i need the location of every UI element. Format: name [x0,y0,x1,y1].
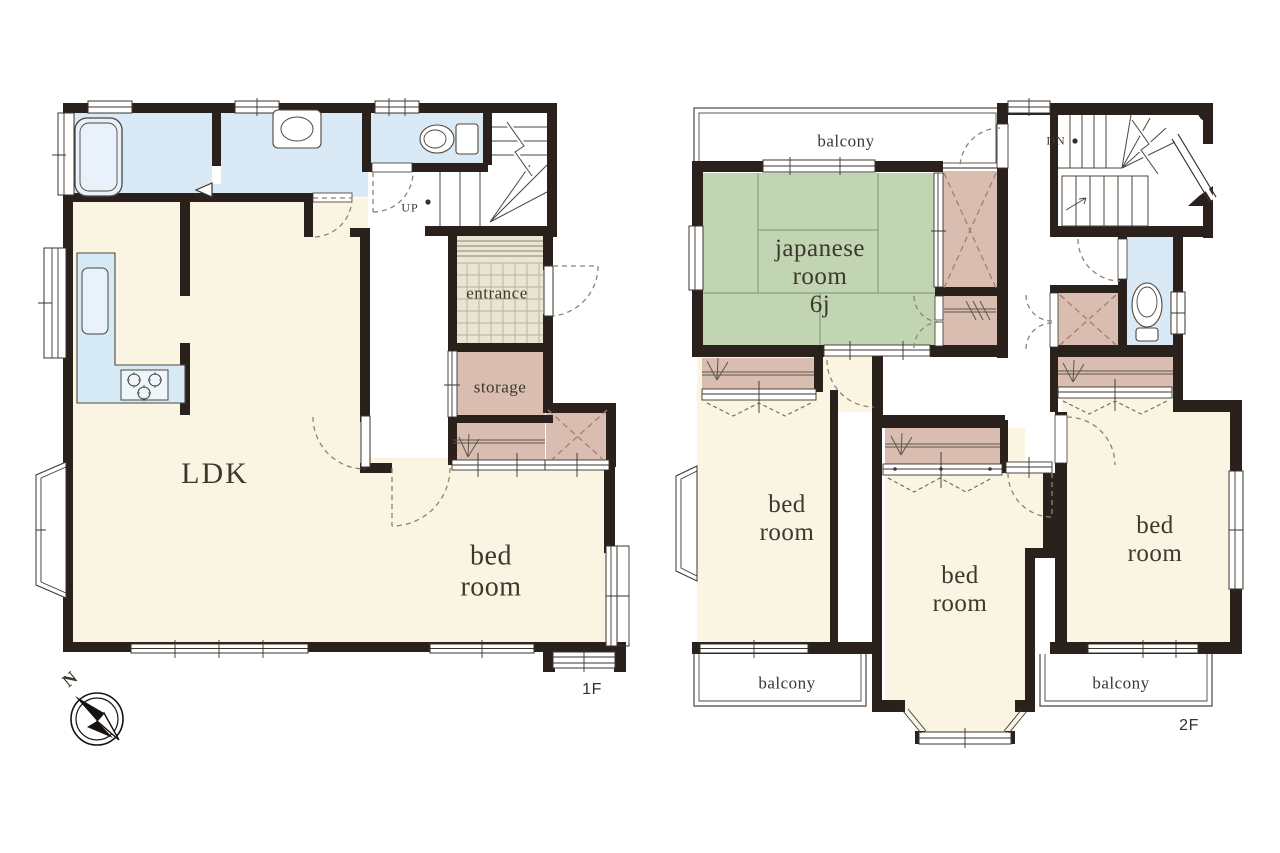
entrance-label: entrance [466,283,528,302]
bedroom-right-label: bed room [1128,512,1183,568]
stove-icon [121,370,168,400]
balcony-top-label: balcony [817,131,874,150]
balcony-door-arc [960,128,1000,168]
toilet2f-icon [1132,283,1162,341]
floorplan-drawing [0,0,1280,853]
xcloset1f-area [546,408,609,465]
bedroom-left-label: bed room [760,491,815,547]
toilet2f-door-arc [1078,239,1120,281]
balcony-right-label: balcony [1092,673,1149,692]
entrance-door-arc [553,266,598,316]
xcloset-mid-door-arcs [1026,295,1052,349]
floorplan-page: LDK bed room entrance storage UP 1F N ja… [0,0,1280,853]
storage-label: storage [474,377,527,396]
stairs-up-label: UP [401,201,418,214]
ldk-label: LDK [181,457,249,491]
stairs-2f [1058,115,1175,226]
stairs-dn-label: DN [1046,134,1065,147]
floor2-plan [676,98,1243,748]
floor1-label: 1F [582,681,602,699]
kitchen-sink-icon [82,268,108,334]
up-start-dot [425,199,430,204]
bedroom1f-label: bed room [460,541,521,604]
bedroom-mid-label: bed room [933,562,988,618]
bathtub-icon [75,118,122,196]
dn-start-dot [1072,138,1077,143]
compass-icon [71,693,123,745]
shelfcloset-area [942,296,998,347]
toilet1f-icon [420,124,478,154]
balcony-left-label: balcony [758,673,815,692]
japanese-room-label: japanese room 6j [775,235,865,319]
floor2-label: 2F [1179,717,1199,735]
floor1-plan [36,98,629,672]
closet-br-area [1058,356,1173,390]
washbasin-icon [273,110,321,148]
